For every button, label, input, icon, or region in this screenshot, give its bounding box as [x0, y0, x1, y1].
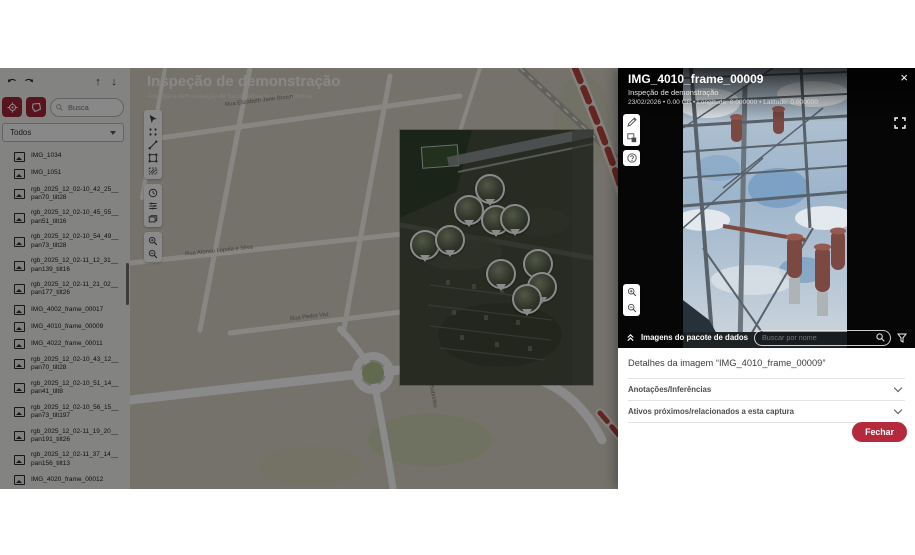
package-search[interactable]: [754, 330, 891, 346]
details-section: Detalhes da imagem “IMG_4010_frame_00009…: [618, 348, 915, 489]
accordion-label: Anotações/Inferências: [628, 385, 711, 394]
package-label: Imagens do pacote de dados: [641, 333, 748, 342]
close-button[interactable]: Fechar: [852, 422, 907, 442]
viewer-tool-card: [623, 114, 640, 146]
accordion-related-assets[interactable]: Ativos próximos/relacionados a esta capt…: [628, 400, 905, 423]
collapse-up-icon[interactable]: [626, 333, 635, 342]
fullscreen-icon[interactable]: [894, 116, 906, 134]
help-icon[interactable]: [623, 150, 640, 166]
package-search-input[interactable]: [760, 332, 873, 343]
accordion-label: Ativos próximos/relacionados a esta capt…: [628, 407, 794, 416]
viewer-tools: [623, 114, 640, 166]
package-bar: Imagens do pacote de dados: [618, 327, 915, 348]
app-window: ↑ ↓ Todos IMG_1034: [0, 68, 915, 489]
zoom-in-icon[interactable]: [623, 284, 640, 300]
viewer-zoom-controls: [623, 284, 640, 316]
viewer-title: IMG_4010_frame_00009: [628, 72, 763, 86]
search-icon: [876, 333, 885, 342]
image-viewer: IMG_4010_frame_00009 Inspeção de demonst…: [618, 68, 915, 348]
screen: ↑ ↓ Todos IMG_1034: [0, 0, 915, 555]
image-compare-icon[interactable]: [623, 130, 640, 146]
image-detail-panel: IMG_4010_frame_00009 Inspeção de demonst…: [618, 68, 915, 489]
chevron-down-icon: [894, 406, 902, 414]
details-title: Detalhes da imagem “IMG_4010_frame_00009…: [628, 358, 905, 368]
zoom-out-icon[interactable]: [623, 300, 640, 316]
accordion-annotations[interactable]: Anotações/Inferências: [628, 378, 905, 400]
modal-dim-overlay: [0, 68, 618, 489]
viewer-tool-card: [623, 150, 640, 166]
viewer-subtitle: Inspeção de demonstração: [628, 88, 718, 97]
chevron-down-icon: [894, 384, 902, 392]
viewer-meta: 23/02/2026 • 0.00 GB • Longitude: 0.0000…: [628, 99, 818, 106]
filter-funnel-icon[interactable]: [897, 333, 907, 343]
close-icon[interactable]: ×: [900, 71, 908, 85]
edit-pencil-icon[interactable]: [623, 114, 640, 130]
